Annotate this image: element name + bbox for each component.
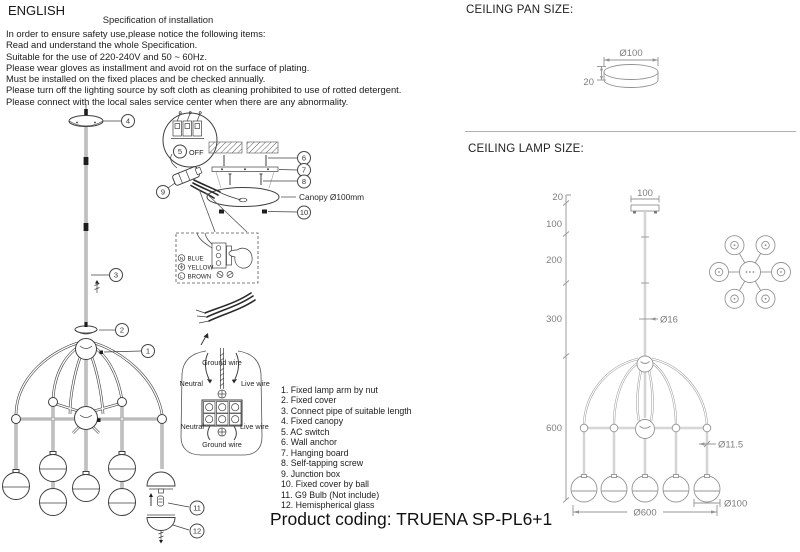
ground-wire-bottom-label: Ground wire	[202, 440, 242, 449]
parts-item: 1. Fixed lamp arm by nut	[281, 385, 412, 395]
parts-item: 9. Junction box	[281, 469, 412, 479]
parts-item: 4. Fixed canopy	[281, 416, 412, 426]
language-label: ENGLISH	[8, 3, 65, 18]
pan-diameter-dim: Ø100	[619, 48, 642, 59]
hand-icon	[229, 248, 252, 268]
neutral-top-label: Neutral	[179, 379, 203, 388]
callout-12: 12	[190, 524, 204, 538]
svg-text:11: 11	[193, 504, 201, 513]
ground-wire-top-label: Ground wire	[202, 358, 242, 367]
neutral-symbol: N	[180, 256, 183, 261]
callout-1: 1	[142, 345, 155, 358]
callout-5: 5	[174, 145, 187, 158]
dim-600: 600	[546, 423, 562, 434]
screw-icon	[159, 531, 164, 544]
dim-100: 100	[546, 219, 562, 230]
rod-diameter-dim: Ø16	[660, 315, 678, 326]
svg-text:10: 10	[300, 208, 308, 217]
spec-text-block: In order to ensure safety use,please not…	[6, 28, 401, 107]
dim-200: 200	[546, 255, 562, 266]
parts-item: 2. Fixed cover	[281, 395, 412, 405]
ceiling-lamp-figure: 20 100 200 300 600 100 Ø16	[546, 188, 790, 519]
spec-line: In order to ensure safety use,please not…	[6, 28, 401, 39]
ball-diameter-dim: Ø100	[724, 499, 747, 510]
yellow-wire-label: YELLOW	[188, 264, 214, 271]
svg-text:3: 3	[114, 271, 118, 280]
blue-wire-label: BLUE	[188, 255, 204, 262]
glass-balls-front	[571, 475, 720, 503]
spec-line: Read and understand the whole Specificat…	[6, 39, 401, 50]
svg-text:4: 4	[126, 117, 130, 126]
callout-6: 6	[298, 152, 311, 165]
glass-balls	[3, 452, 136, 516]
product-coding: Product coding: TRUENA SP-PL6+1	[270, 509, 552, 530]
svg-text:5: 5	[178, 147, 182, 156]
svg-text:8: 8	[302, 177, 306, 186]
dim-300: 300	[546, 314, 562, 325]
height-dimensions: 20 100 200 300 600	[546, 192, 571, 503]
exploded-ball-parts	[147, 472, 175, 544]
wire-bundle	[196, 293, 255, 345]
spec-line: Please turn off the lighting source by s…	[6, 84, 401, 95]
off-label: OFF	[189, 148, 204, 157]
callout-11: 11	[190, 501, 204, 515]
wire-color-box: N L BLUE YELLOW BROWN	[176, 233, 258, 283]
dim-20: 20	[552, 192, 563, 203]
live-wire-bottom-label: Live wire	[240, 422, 269, 431]
spec-line: Suitable for the use of 220-240V and 50 …	[6, 51, 401, 62]
parts-item: 11. G9 Bulb (Not include)	[281, 490, 412, 500]
callout-2: 2	[116, 324, 129, 337]
svg-text:6: 6	[302, 154, 306, 163]
canopy-size-label: Canopy Ø100mm	[299, 192, 364, 202]
spec-title: Specification of installation	[58, 14, 258, 25]
callout-9: 9	[157, 186, 170, 199]
ceiling-lamp-size-title: CEILING LAMP SIZE:	[468, 143, 584, 155]
spec-line: Please connect with the local sales serv…	[6, 96, 401, 107]
arm-diameter-dim: Ø11.5	[718, 440, 743, 451]
ceiling-pan-figure: Ø100 20	[583, 48, 658, 88]
parts-item: 7. Hanging board	[281, 448, 412, 458]
svg-text:2: 2	[120, 326, 124, 335]
parts-list: 1. Fixed lamp arm by nut 2. Fixed cover …	[281, 385, 412, 510]
live-wire-top-label: Live wire	[241, 379, 270, 388]
pan-height-dim: 20	[583, 77, 594, 88]
callout-4: 4	[122, 115, 135, 128]
screw-icon	[95, 280, 100, 293]
spec-line: Must be installed on the fixed places an…	[6, 73, 401, 84]
parts-item: 5. AC switch	[281, 427, 412, 437]
exploded-lamp-figure: 4 3 2 1 11 12	[3, 104, 205, 544]
svg-text:7: 7	[302, 166, 306, 175]
callout-8: 8	[298, 175, 311, 188]
manual-page: 4 3 2 1 11 12	[0, 0, 800, 552]
spec-line: Please wear gloves as installment and av…	[6, 62, 401, 73]
callout-10: 10	[298, 206, 311, 219]
callout-3: 3	[110, 269, 123, 282]
neutral-bottom-label: Neutral	[180, 422, 204, 431]
bulb-icon	[149, 493, 164, 506]
canopy-width-dim: 100	[637, 188, 653, 199]
parts-item: 8. Self-tapping screw	[281, 458, 412, 468]
parts-item: 3. Connect pipe of suitable length	[281, 406, 412, 416]
total-diameter-dim: Ø600	[633, 508, 656, 519]
parts-item: 10. Fixed cover by ball	[281, 479, 412, 489]
ceiling-pan-size-title: CEILING PAN SIZE:	[466, 4, 573, 16]
svg-text:1: 1	[146, 347, 150, 356]
live-symbol: L	[180, 274, 183, 279]
svg-text:12: 12	[193, 527, 201, 536]
lamp-top-view	[710, 236, 791, 309]
terminal-diagram: Ground wire Neutral Live wire Neutral Li…	[179, 348, 269, 455]
brown-wire-label: BROWN	[188, 273, 212, 280]
parts-item: 6. Wall anchor	[281, 437, 412, 447]
svg-text:9: 9	[161, 188, 165, 197]
